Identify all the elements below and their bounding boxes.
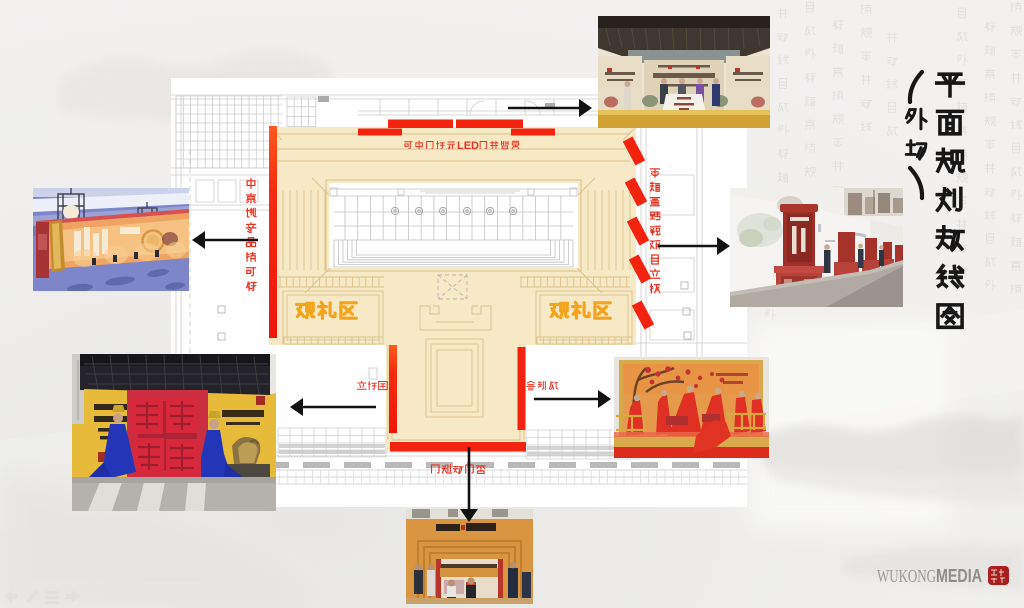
svg-text:MEDIA: MEDIA	[936, 566, 982, 586]
svg-text:WUKONG: WUKONG	[877, 566, 936, 586]
svg-text:LED: LED	[457, 140, 479, 152]
